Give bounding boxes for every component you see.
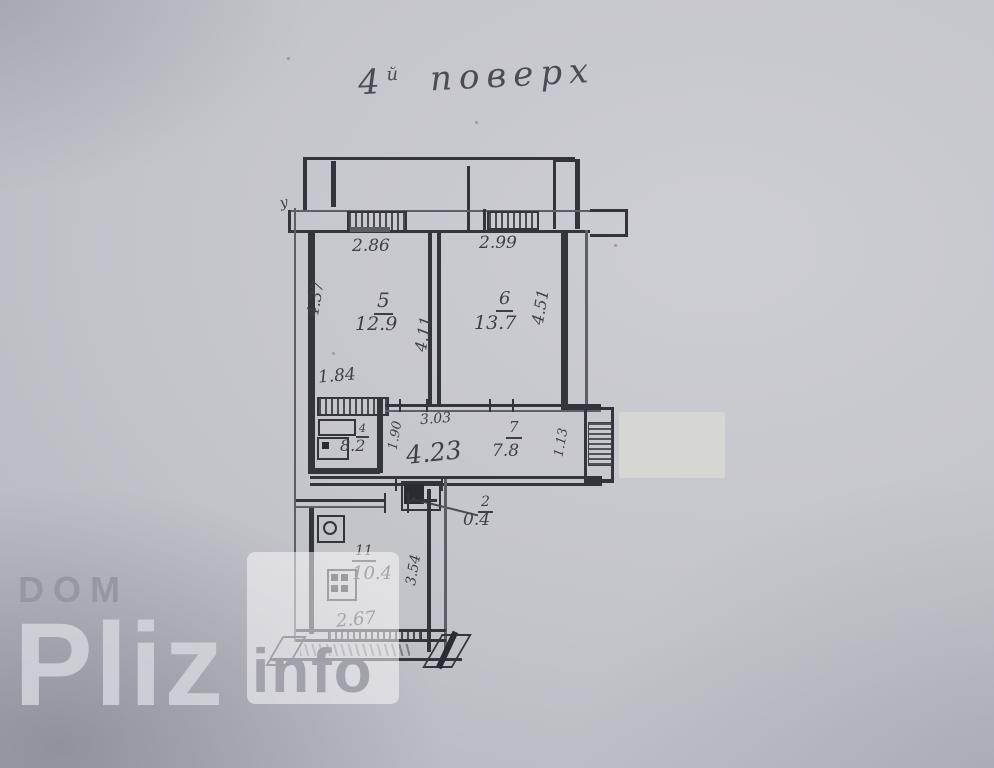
edge-mark: у (279, 195, 290, 210)
room6-number: 6 (496, 290, 513, 308)
wall-balcony-post-right-top (553, 159, 580, 162)
wall-right-step-top (590, 209, 628, 212)
dim-window-right: 2.99 (479, 235, 517, 252)
wall-hall-bottom-a (310, 476, 602, 479)
door-tick-6 (407, 493, 409, 513)
wall-bottomroom-top-stub (409, 499, 437, 502)
hall-number: 7 (506, 420, 522, 435)
door-tick-3 (489, 399, 491, 412)
wall-balcony-post-left (331, 161, 336, 207)
watermark-pliz: Pliz (14, 606, 225, 724)
wall-balcony-post-right-a (553, 159, 556, 229)
dim-kitchen-depth: 1.90 (387, 420, 405, 451)
wall-right-step-bottom (590, 234, 628, 237)
dim-right-nook: 1.13 (553, 427, 571, 458)
door-tick-2 (426, 399, 428, 412)
closet-tick-left (395, 477, 397, 491)
kitchen-fixture-sink (318, 419, 356, 436)
wall-nook-section-hatch (588, 422, 612, 466)
dim-room6-right: 4.51 (530, 288, 552, 326)
dim-hall-length: 4.23 (405, 437, 463, 468)
door-tick-5 (384, 493, 386, 513)
wall-facade-sill (288, 210, 628, 212)
closet-area: 0.4 (463, 512, 490, 529)
wall-window-divider (467, 166, 470, 232)
window-room6-jamb (483, 209, 486, 233)
redaction-box (619, 412, 725, 478)
wall-balcony-left (303, 157, 307, 211)
scanned-floorplan-photo: 4й поверх (0, 0, 994, 768)
wall-bottomroom-right (427, 489, 431, 652)
kitchen-number: 4 (356, 423, 369, 434)
room5-number: 5 (374, 290, 393, 310)
wall-nook-left (584, 410, 587, 482)
wall-room6-right (561, 230, 568, 410)
door-tick-4 (512, 399, 514, 412)
closet-number: 2 (478, 495, 493, 509)
vent-symbol-circle (323, 521, 337, 535)
closet-tick-right (441, 477, 443, 491)
wall-facade-left-stub (288, 210, 291, 233)
door-tick-1 (399, 399, 401, 412)
dim-bottomroom-height: 3.54 (404, 553, 423, 586)
hall-area: 7.8 (492, 443, 519, 460)
dim-hall-top: 3.03 (420, 411, 452, 427)
dim-room5-left: 4.37 (305, 280, 327, 318)
watermark-info: info (252, 641, 374, 703)
window-room6 (487, 211, 539, 230)
kitchen-fixture-burner (322, 442, 329, 449)
room5-area: 12.9 (355, 315, 397, 334)
wall-room6-right-outline (585, 230, 588, 412)
wall-kitchen-left (308, 396, 315, 474)
dim-window-left: 2.86 (352, 238, 390, 255)
wall-hall-top-b (385, 410, 601, 412)
wall-right-step-side (625, 209, 628, 237)
kitchen-area: 8.2 (340, 438, 365, 454)
wall-kitchen-bottom (310, 468, 380, 474)
window-room5-sill (350, 227, 390, 232)
dim-kitchen-width: 1.84 (317, 366, 356, 386)
wall-nook-top (561, 407, 614, 410)
wall-rooms-mid-b (437, 230, 441, 407)
wall-balcony-top (303, 157, 575, 160)
room6-area: 13.7 (474, 314, 516, 333)
wall-nook-bottom (584, 479, 614, 483)
wall-kitchen-right (377, 397, 383, 473)
wall-balcony-post-right-b (575, 159, 580, 229)
wall-hall-bottom-b (310, 483, 602, 486)
wall-bottomroom-top-a (296, 499, 386, 502)
